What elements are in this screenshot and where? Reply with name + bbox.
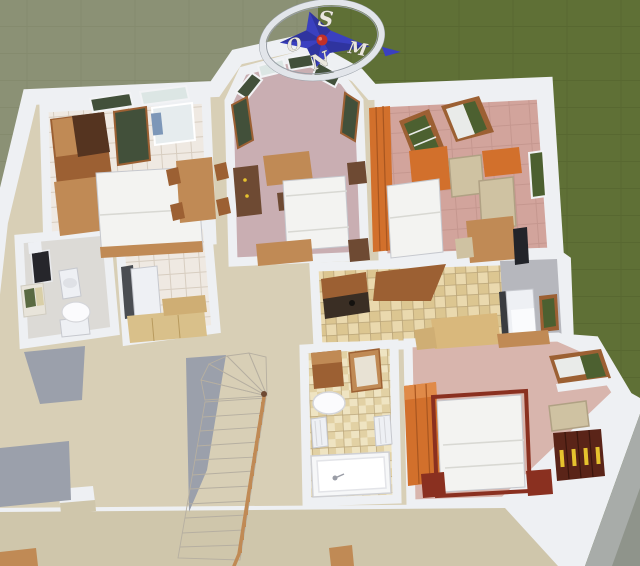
tall-window [114, 107, 150, 165]
fridge [506, 289, 536, 336]
radiator [374, 415, 392, 446]
changing-table [349, 349, 382, 392]
leaning-picture [539, 294, 559, 332]
sink [59, 268, 81, 299]
nightstand [348, 238, 370, 262]
tall-cabinet-white [131, 266, 161, 319]
dresser-knob [243, 178, 247, 182]
side-window [341, 93, 359, 141]
armchair [449, 155, 484, 197]
bath-cabinet [311, 350, 344, 389]
bedpost [421, 472, 446, 498]
washbasin [313, 392, 345, 414]
skylight-plant-window [549, 349, 611, 392]
compass-label-s: S [317, 6, 334, 32]
toilet [60, 302, 90, 337]
radiator [311, 417, 328, 448]
double-bed [283, 176, 349, 251]
dresser [233, 165, 262, 217]
tv-unit [513, 227, 529, 265]
bathtub [311, 452, 391, 497]
nightstand [347, 161, 367, 185]
dresser-knob [245, 194, 249, 198]
wall-picture [529, 151, 546, 198]
cabinet-maroon [553, 429, 605, 481]
bedpost [526, 469, 553, 496]
dispenser [28, 241, 42, 254]
chair [549, 401, 589, 431]
mirror [31, 250, 52, 284]
wall-shelf [21, 283, 46, 317]
terrace-floor [0, 508, 558, 566]
kitchen-counter [321, 272, 370, 319]
cabinet-orange [482, 147, 522, 177]
terrace-wood-box [329, 545, 354, 566]
floorplan-3d-viewport[interactable]: S O N M [0, 0, 640, 566]
